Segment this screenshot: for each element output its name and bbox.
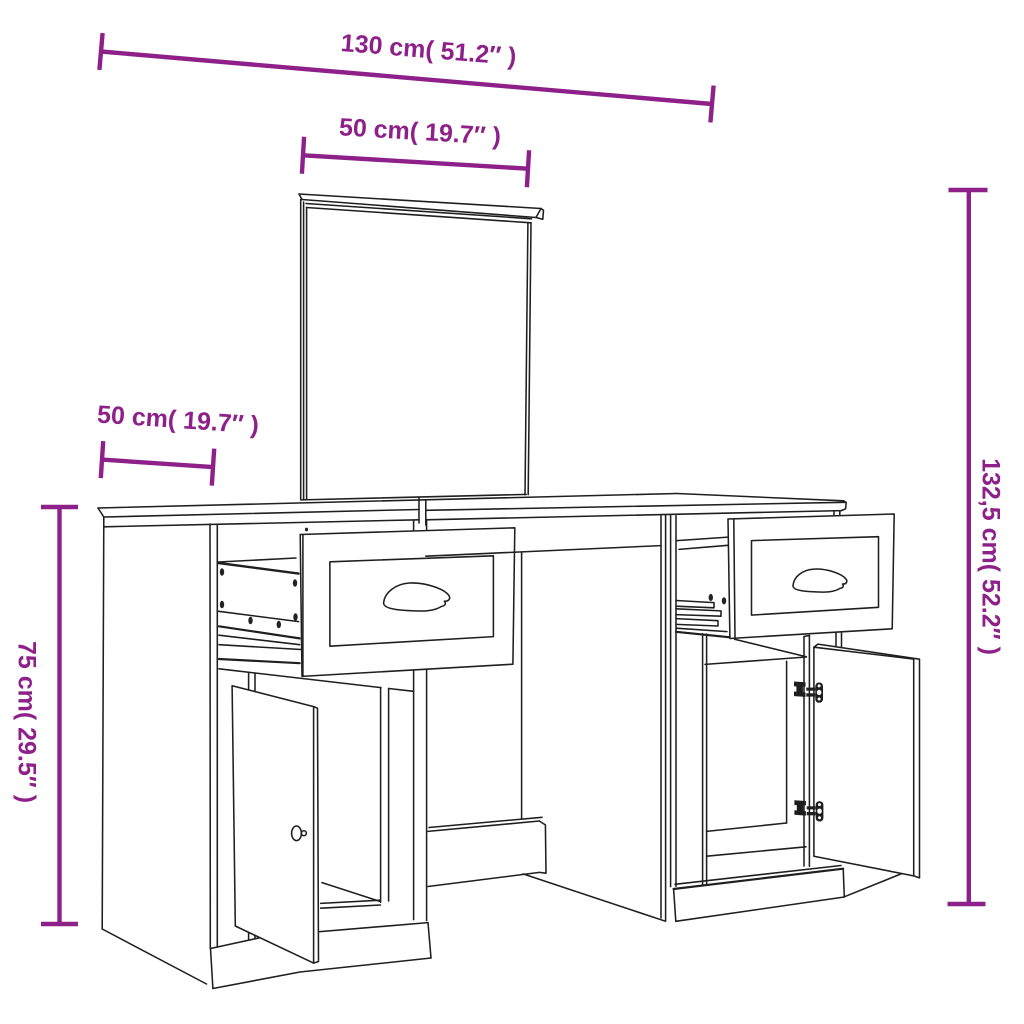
svg-text:132,5 cm( 52.2″ ): 132,5 cm( 52.2″ ) — [977, 458, 1005, 655]
svg-text:75 cm( 29.5″ ): 75 cm( 29.5″ ) — [13, 641, 41, 803]
